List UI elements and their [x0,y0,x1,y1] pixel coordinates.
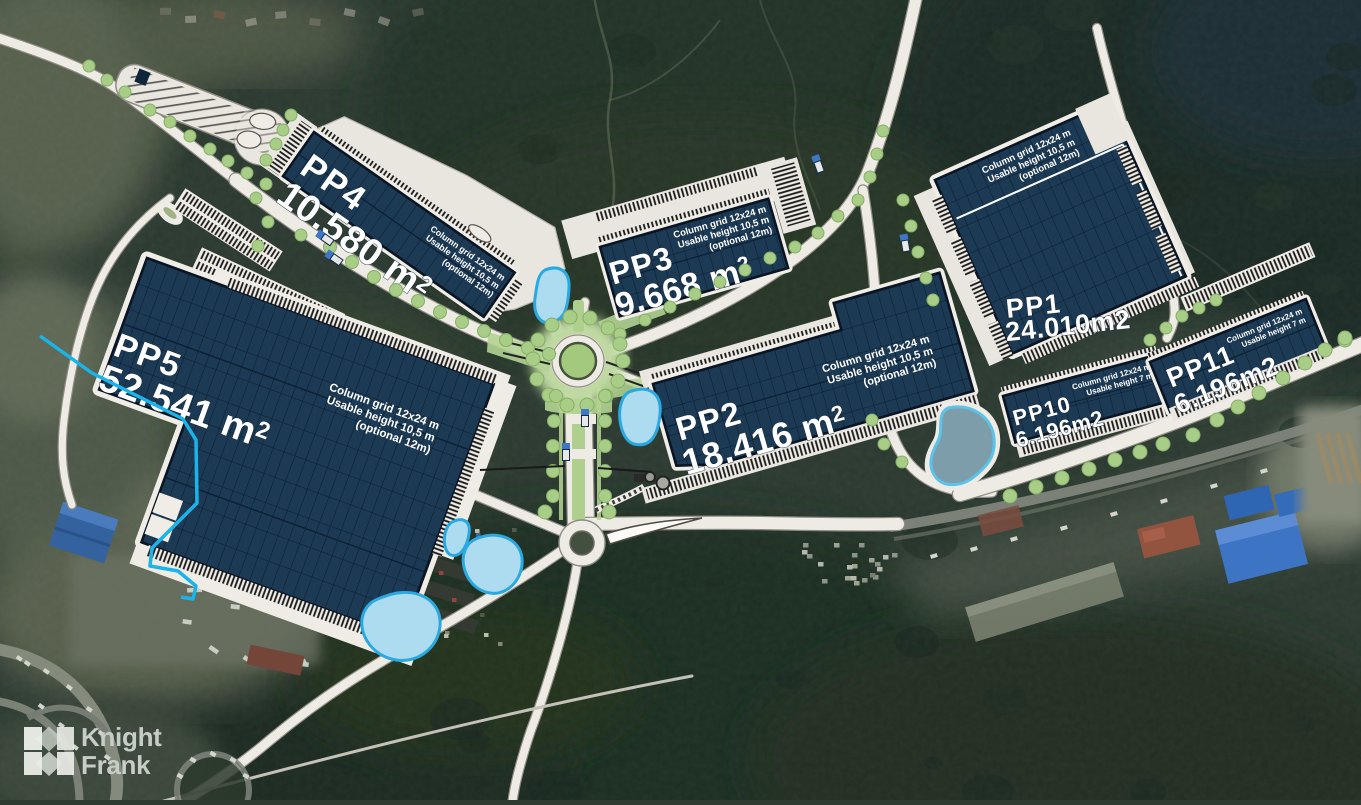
svg-text:Knight: Knight [81,722,162,752]
svg-text:Frank: Frank [81,750,151,780]
